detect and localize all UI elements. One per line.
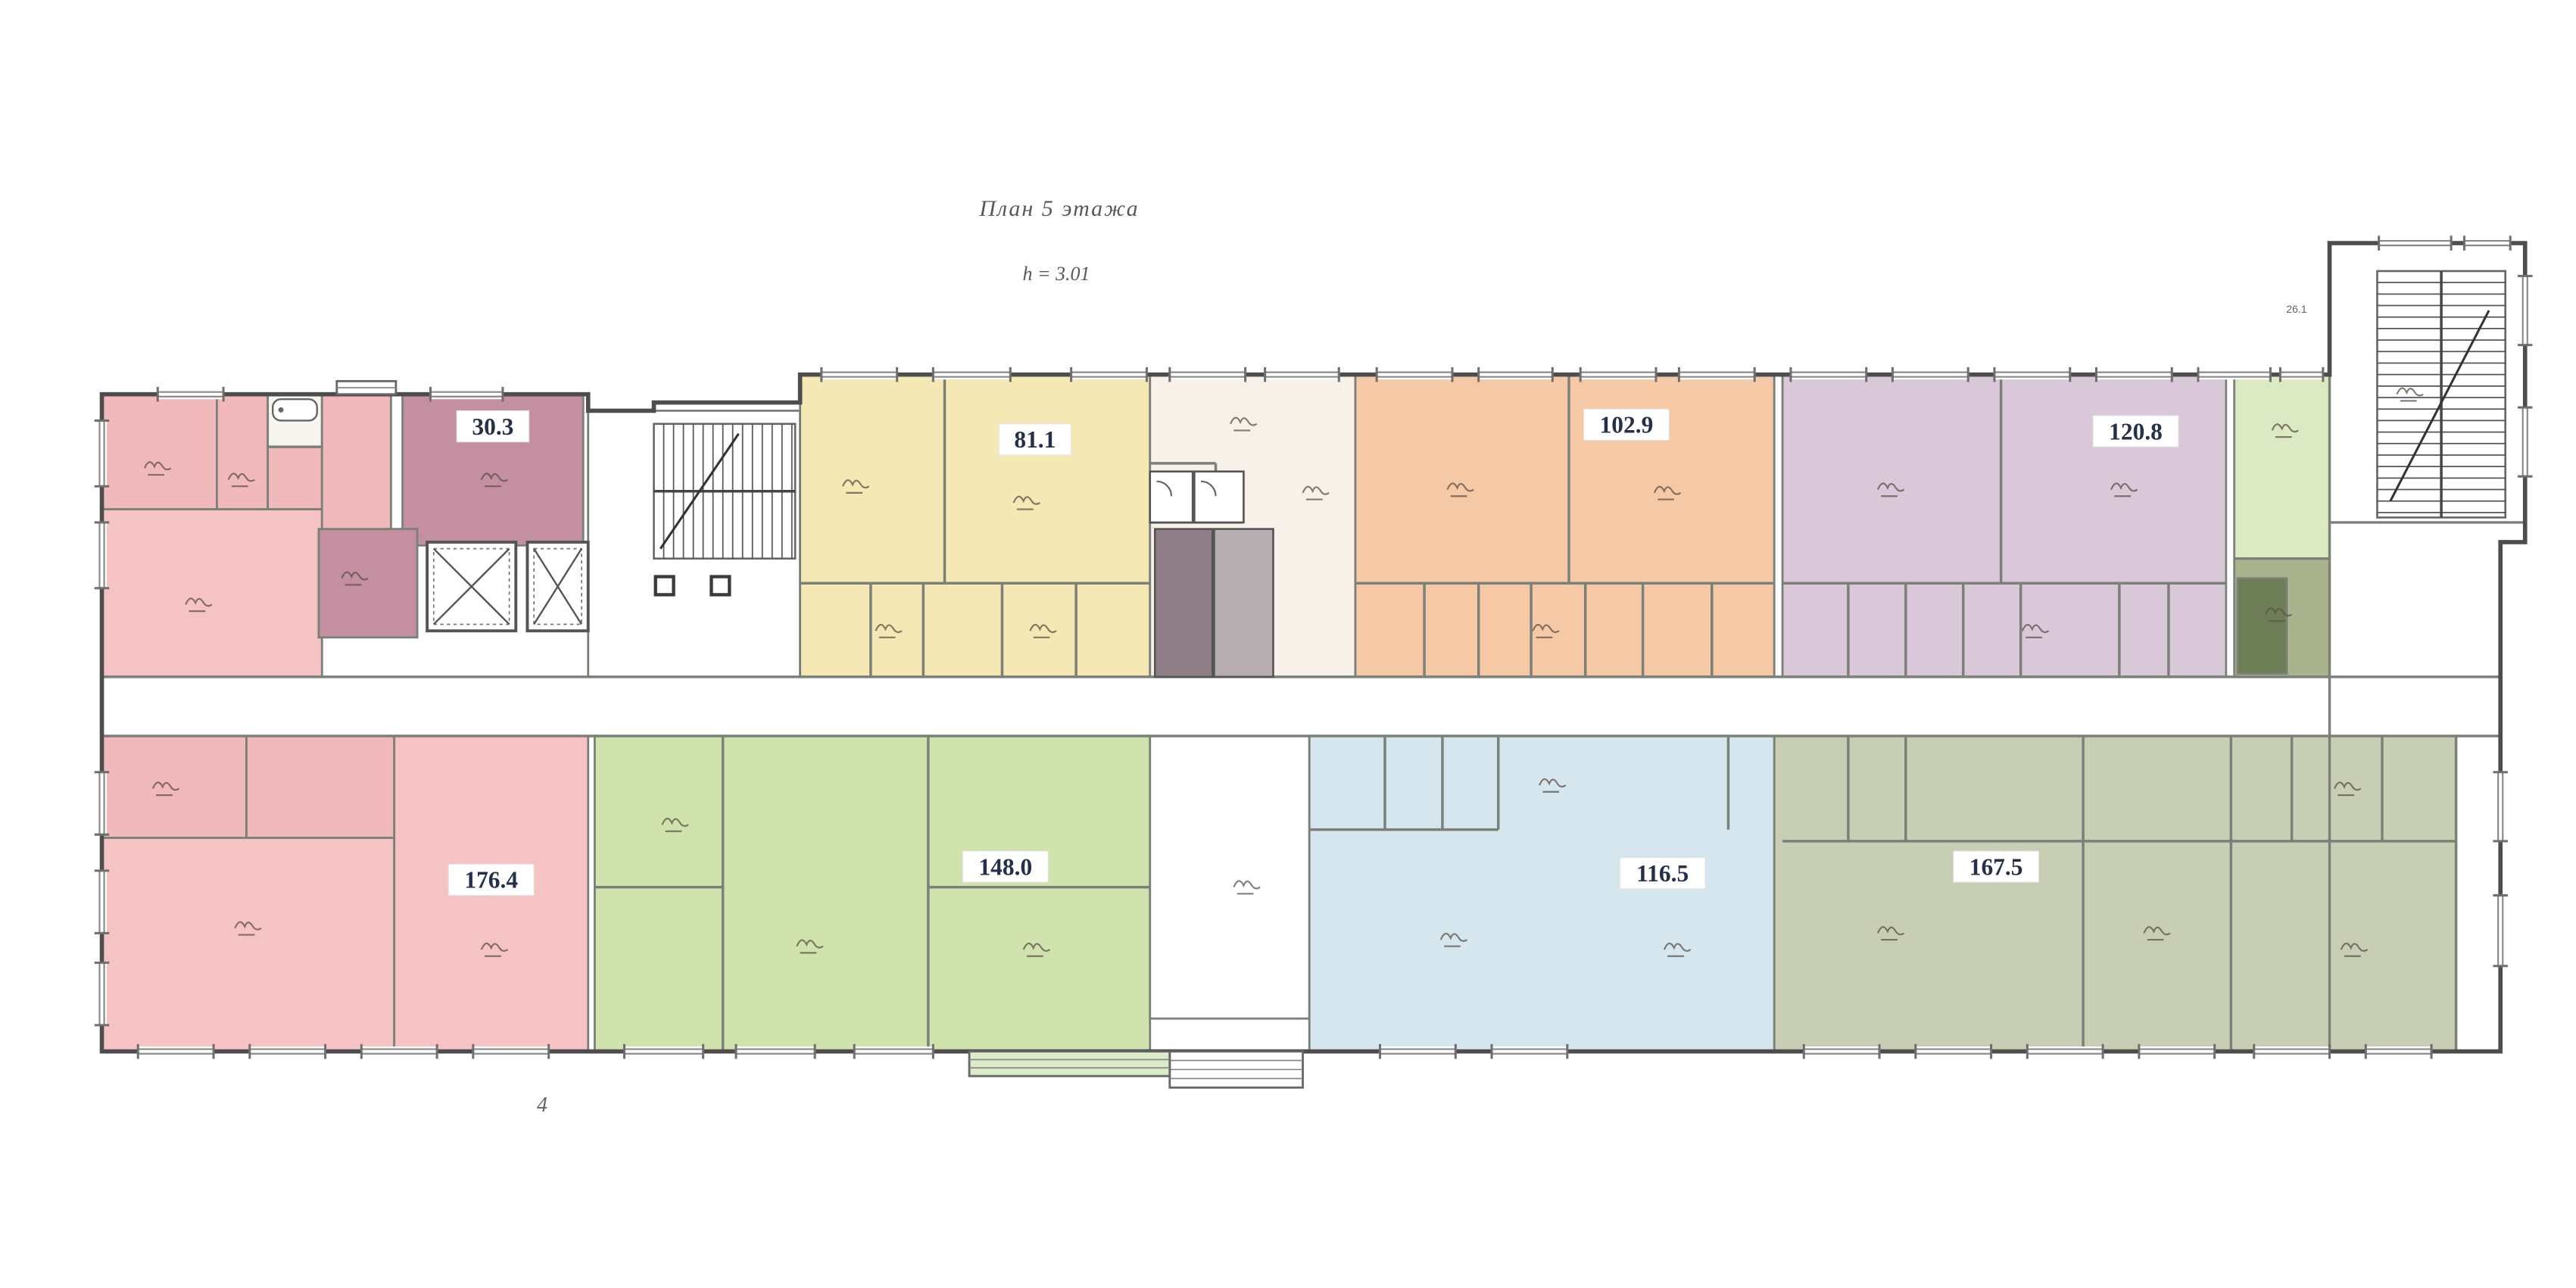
area-label-unit-30-3: 30.3 <box>472 413 513 440</box>
plan-room-pink-b <box>217 395 267 510</box>
floor-plan-svg: 30.381.1102.9120.8176.4148.0116.5167.5 <box>0 0 2576 1288</box>
window <box>2464 239 2510 248</box>
window <box>2379 239 2451 248</box>
axis-grid-label: 4 <box>537 1093 547 1118</box>
window <box>97 772 107 834</box>
area-label-unit-116-5: 116.5 <box>1636 860 1689 887</box>
area-label-unit-120-8: 120.8 <box>2109 418 2163 444</box>
fixture-closet <box>1194 472 1243 522</box>
service-shaft <box>1155 529 1212 677</box>
window <box>473 1046 549 1056</box>
window <box>157 389 223 399</box>
window <box>624 1046 703 1056</box>
area-label-unit-81-1: 81.1 <box>1014 426 1056 453</box>
area-label-unit-176-4: 176.4 <box>464 867 518 893</box>
window <box>97 871 107 933</box>
window <box>736 1046 815 1056</box>
window <box>1380 1046 1456 1056</box>
window <box>2139 1046 2215 1056</box>
window <box>2496 895 2506 965</box>
plan-room-pink-e <box>102 736 247 838</box>
window <box>138 1046 214 1056</box>
plan-room-pink-d <box>322 395 391 546</box>
plan-center-hall <box>1150 736 1309 1018</box>
window <box>933 370 1010 379</box>
plan-unit-148-0 <box>594 736 1149 1052</box>
window <box>2365 1046 2431 1056</box>
window <box>361 1046 437 1056</box>
window <box>1916 1046 1991 1056</box>
window <box>1492 1046 1567 1056</box>
window <box>2280 370 2322 379</box>
fixture-closet <box>1150 472 1193 522</box>
window <box>2198 370 2270 379</box>
window <box>822 370 897 379</box>
window <box>2520 407 2530 476</box>
plan-subtitle: h = 3.01 <box>1022 263 1090 285</box>
area-label-unit-102-9: 102.9 <box>1600 412 1654 438</box>
window <box>1170 370 1246 379</box>
plan-room-green-right <box>2235 375 2330 559</box>
window <box>1804 1046 1879 1056</box>
window <box>1479 370 1553 379</box>
window <box>2027 1046 2103 1056</box>
window <box>1265 370 1339 379</box>
plan-room-pink-f <box>246 736 394 838</box>
plan-unit-167-5 <box>1774 736 2456 1052</box>
window <box>1892 370 1968 379</box>
window <box>97 420 107 486</box>
window <box>2254 1046 2330 1056</box>
window <box>97 522 107 588</box>
window <box>1679 370 1754 379</box>
stair-dim-label: 26.1 <box>2286 303 2306 315</box>
plan-room-pink-big-top <box>102 510 323 677</box>
window <box>250 1046 326 1056</box>
window <box>2520 276 2530 345</box>
window <box>2496 772 2506 841</box>
plan-room-pink-c <box>268 447 323 509</box>
window <box>2096 370 2172 379</box>
area-label-unit-148-0: 148.0 <box>978 853 1032 880</box>
service-shaft <box>1214 529 1273 677</box>
window <box>854 1046 933 1056</box>
plan-unit-116-5 <box>1309 736 1774 1052</box>
plan-trash-room <box>319 529 417 638</box>
plan-title: План 5 этажа <box>979 196 1139 222</box>
area-label-unit-167-5: 167.5 <box>1969 853 2023 880</box>
column <box>711 577 729 595</box>
floor-plan-page: 30.381.1102.9120.8176.4148.0116.5167.5 П… <box>0 0 2576 1288</box>
plan-room-pink-big-bottom <box>102 838 395 1052</box>
plan-unit-81-1 <box>800 375 1150 677</box>
window <box>1791 370 1867 379</box>
window <box>1994 370 2070 379</box>
window <box>1071 370 1147 379</box>
column <box>656 577 674 595</box>
window <box>97 962 107 1024</box>
window <box>430 389 502 399</box>
plan-room-pink-a <box>102 395 217 510</box>
plan-room-olive-dark <box>2238 579 2287 674</box>
balcony <box>969 1052 1170 1077</box>
window <box>1377 370 1452 379</box>
window <box>1580 370 1656 379</box>
